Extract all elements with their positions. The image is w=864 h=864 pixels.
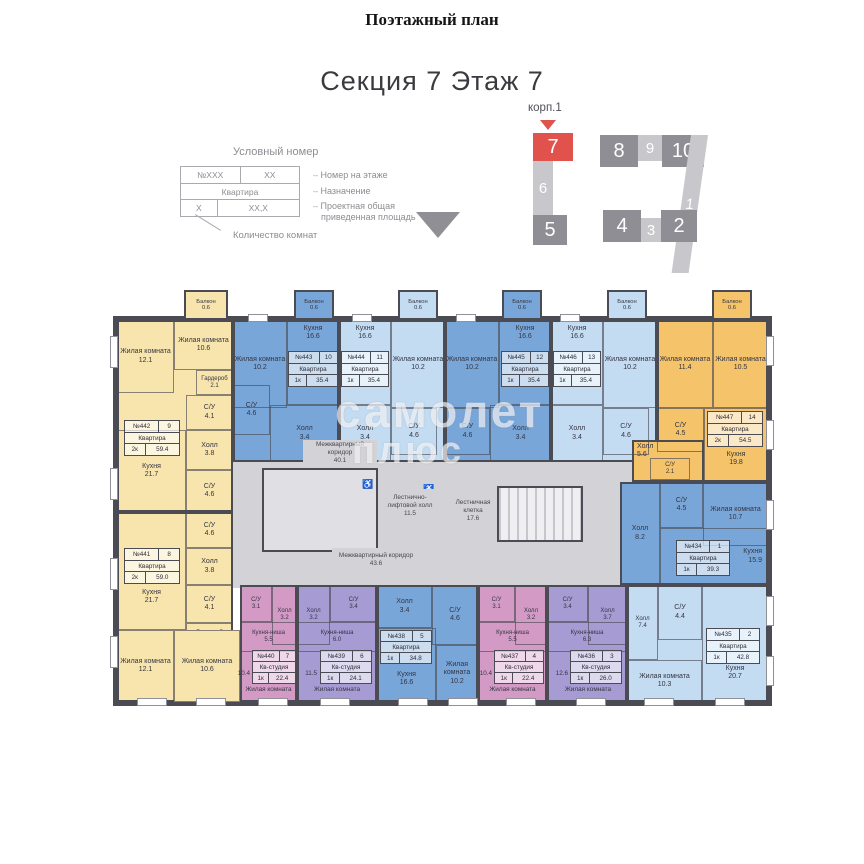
room-area: 7.4	[638, 623, 646, 630]
room-name: С/У	[620, 423, 631, 431]
room-name: Холл	[277, 608, 291, 615]
room-name: Жилая комната	[437, 661, 477, 677]
unit-rooms: 1к	[677, 564, 697, 575]
room-bathroom: С/У2.1	[650, 458, 690, 480]
legend-cell-pos: XX	[241, 167, 300, 183]
unit-pos: 12	[531, 352, 548, 363]
unit-number: №437	[495, 651, 526, 661]
unit-info-444: №44411Квартира1к35.4	[341, 351, 389, 387]
room-area: 15.9	[748, 557, 762, 565]
room-name: Кухня	[304, 325, 323, 333]
room-name: Жилая комната	[710, 506, 761, 514]
unit-pos: 9	[159, 421, 179, 432]
unit-type: Кв-студия	[321, 662, 371, 672]
building-section-diagram: корп.1 7 6 5 8 9 10 1 4 3 2	[528, 102, 743, 252]
unit-type: Квартира	[125, 561, 179, 572]
room-area: 3.1	[252, 604, 260, 611]
unit-type: Кв-студия	[495, 662, 543, 672]
unit-number: №441	[125, 549, 159, 560]
room-living: Жилая комната11.4	[657, 320, 713, 408]
window-marker	[560, 314, 580, 322]
room-bathroom: С/У4.6	[186, 470, 233, 512]
section-8[interactable]: 8	[600, 135, 638, 167]
room-name: Жилая комната	[639, 673, 690, 681]
room-wardrobe: Гардероб2.1	[196, 370, 233, 395]
room-name: Жилая комната	[715, 356, 766, 364]
unit-info-440: №4407Кв-студия1к22.4	[252, 650, 296, 684]
room-name: Кухня	[142, 589, 161, 597]
unit-rooms: 1к	[707, 652, 727, 663]
room-name: Холл	[569, 425, 586, 433]
unit-number: №440	[253, 651, 280, 661]
section-5[interactable]: 5	[533, 215, 567, 245]
room-area: 3.8	[205, 567, 215, 575]
unit-rooms: 1к	[495, 673, 513, 683]
legend-note-area-line2: приведенная площадь	[321, 212, 416, 222]
room-name: Кухня-ниша	[496, 630, 529, 637]
room-name: Холл	[201, 442, 218, 450]
room-area: 3.4	[400, 607, 410, 615]
section-pointer-icon	[540, 120, 556, 130]
unit-info-446: №44613Квартира1к35.4	[553, 351, 601, 387]
corridor-label: Межквартирный коридор43.6	[332, 548, 420, 572]
balcony-444: Балкон0.6	[398, 290, 438, 320]
window-marker	[196, 698, 226, 706]
room-name: Жилая комната	[660, 356, 711, 364]
balcony-447: Балкон0.6	[712, 290, 752, 320]
room-area: 3.2	[527, 615, 535, 622]
window-marker	[715, 698, 745, 706]
legend-note-purpose: Назначение	[313, 186, 371, 196]
window-marker	[110, 636, 118, 668]
room-area: 0.6	[310, 305, 318, 311]
legend-cell-number: №XXX	[181, 167, 241, 183]
room-area: 2.1	[666, 469, 674, 476]
unit-info-434: №4341Квартира1к39.3	[676, 540, 730, 576]
room-hall: Холл3.4	[377, 585, 432, 628]
unit-type: Квартира	[708, 424, 762, 435]
section-3[interactable]: 3	[641, 218, 661, 242]
room-area: 21.7	[145, 471, 159, 479]
room-area: 10.2	[253, 364, 267, 372]
window-marker	[258, 698, 288, 706]
room-hall: Холл3.8	[186, 430, 233, 470]
room-area: 4.1	[205, 604, 215, 612]
section-4[interactable]: 4	[603, 210, 641, 242]
unit-rooms: 1к	[321, 673, 340, 683]
window-marker	[137, 698, 167, 706]
room-living: Жилая комната12.1	[117, 630, 174, 702]
room-kitchen-niche: Кухня-ниша5.5	[240, 622, 297, 652]
room-name: Жилая комната	[235, 356, 286, 364]
room-name: С/У	[251, 597, 261, 604]
unit-pos: 8	[159, 549, 179, 560]
room-area: 16.6	[400, 679, 414, 687]
room-area: 10.6	[200, 666, 214, 674]
balcony-445: Балкон0.6	[502, 290, 542, 320]
room-bathroom: С/У4.1	[186, 585, 233, 623]
staircase	[497, 486, 583, 542]
room-area: 3.2	[309, 615, 317, 622]
section-9[interactable]: 9	[638, 135, 662, 161]
common-name: Лестнично-лифтовой холл	[384, 494, 436, 509]
unit-type: Квартира	[707, 641, 759, 652]
studio-living-area: 11.5	[300, 670, 317, 677]
section-number: 9	[646, 140, 654, 157]
unit-area: 22.4	[269, 673, 295, 683]
room-area: 10.5	[734, 364, 748, 372]
unit-type: Квартира	[677, 553, 729, 564]
room-name: Гардероб	[201, 376, 227, 383]
unit-info-437: №4374Кв-студия1к22.4	[494, 650, 544, 684]
unit-info-442: №4429Квартира2к59.4	[124, 420, 180, 456]
room-name: Холл	[306, 608, 320, 615]
room-bathroom: С/У4.4	[658, 585, 702, 640]
room-area: 4.5	[676, 430, 686, 438]
room-name: Холл	[632, 525, 649, 533]
room-living: Жилая комната10.6	[174, 630, 240, 702]
unit-rooms: 1к	[571, 673, 590, 683]
studio-living-caption: Жилая комната	[299, 686, 375, 693]
unit-number: №438	[381, 631, 413, 641]
room-name: С/У	[492, 597, 502, 604]
room-area: 2.1	[210, 383, 218, 390]
section-6[interactable]: 6	[533, 161, 553, 215]
window-marker	[506, 698, 536, 706]
common-area: 17.6	[467, 515, 479, 523]
legend-cell-rooms: X	[181, 200, 218, 216]
room-name: Холл	[600, 608, 614, 615]
room-area: 3.2	[280, 615, 288, 622]
room-area: 0.6	[623, 305, 631, 311]
room-area: 0.6	[518, 305, 526, 311]
studio-living-caption: Жилая комната	[478, 686, 547, 693]
common-name: Межквартирный коридор	[339, 552, 413, 560]
room-name: Жилая комната	[120, 348, 171, 356]
legend-cell-area: XX,X	[218, 200, 299, 216]
room-name: Кухня-ниша	[252, 630, 285, 637]
unit-area: 22.4	[513, 673, 543, 683]
window-marker	[456, 314, 476, 322]
room-name: Кухня	[727, 451, 746, 459]
room-name: Жилая комната	[120, 658, 171, 666]
window-marker	[110, 468, 118, 500]
room-kitchen-niche: Кухня-ниша6.0	[297, 622, 377, 652]
room-hall: Холл7.4	[627, 585, 658, 660]
section-number: 7	[547, 136, 558, 159]
unit-number: №443	[289, 352, 320, 363]
unit-info-435: №4352Квартира1к42.8	[706, 628, 760, 664]
room-name: С/У	[246, 402, 257, 410]
section-2[interactable]: 2	[661, 210, 697, 242]
room-area: 10.2	[465, 364, 479, 372]
room-area: 3.4	[349, 604, 357, 611]
room-bathroom: С/У4.6	[186, 512, 233, 548]
unit-pos: 7	[280, 651, 295, 661]
room-area: 10.6	[197, 345, 211, 353]
room-kitchen-niche: Кухня-ниша6.3	[547, 622, 627, 652]
room-area: 3.1	[492, 604, 500, 611]
unit-area: 35.4	[572, 375, 600, 386]
unit-rooms: 1к	[554, 375, 572, 386]
room-living: Жилая комната12.1	[117, 320, 174, 393]
room-hall: Холл3.4	[551, 405, 603, 462]
unit-pos: 10	[320, 352, 337, 363]
room-area: 16.6	[306, 333, 320, 341]
unit-number: №445	[502, 352, 531, 363]
unit-number: №439	[321, 651, 353, 661]
window-marker	[766, 596, 774, 626]
unit-number: №442	[125, 421, 159, 432]
room-name: Кухня	[726, 665, 745, 673]
unit-area: 54.5	[729, 435, 762, 446]
unit-pos: 6	[353, 651, 371, 661]
section-number: 4	[616, 215, 627, 238]
room-bathroom: С/У4.1	[186, 395, 233, 430]
studio-living-caption: Жилая комната	[240, 686, 297, 693]
building-label: корп.1	[528, 102, 562, 114]
unit-info-443: №44310Квартира1к35.4	[288, 351, 338, 387]
unit-number: №434	[677, 541, 710, 552]
room-area: 10.3	[658, 681, 672, 689]
unit-pos: 14	[742, 412, 762, 423]
room-area: 5.5	[508, 637, 516, 644]
section-number: 3	[647, 222, 655, 239]
room-name: Жилая комната	[178, 337, 229, 345]
room-area: 19.8	[729, 459, 743, 467]
room-kitchen-niche: Кухня-ниша5.5	[478, 622, 547, 652]
window-marker	[576, 698, 606, 706]
unit-area: 26.0	[590, 673, 621, 683]
window-marker	[766, 656, 774, 686]
page-title: Поэтажный план	[0, 10, 864, 30]
room-area: 4.6	[205, 491, 215, 499]
staircase-label: Лестничная клетка17.6	[450, 495, 496, 527]
window-marker	[644, 698, 674, 706]
room-area: 5.5	[264, 637, 272, 644]
section-number: 2	[673, 215, 684, 238]
unit-info-438: №4385Квартира1к34.8	[380, 630, 432, 664]
unit-type: Квартира	[125, 433, 179, 444]
room-living: Жилая комната10.2	[603, 320, 657, 408]
room-area: 3.4	[563, 604, 571, 611]
unit-number: №436	[571, 651, 603, 661]
room-name: Холл	[637, 443, 654, 451]
window-marker	[320, 698, 350, 706]
room-name: С/У	[204, 522, 215, 530]
unit-area: 59.4	[146, 444, 179, 455]
room-bathroom: С/У3.4	[547, 585, 588, 622]
unit-type: Квартира	[342, 364, 388, 375]
unit-type: Квартира	[554, 364, 600, 375]
unit-rooms: 2к	[708, 435, 729, 446]
window-marker	[398, 698, 428, 706]
room-bathroom: С/У4.6	[432, 585, 478, 645]
room-area: 4.4	[675, 613, 685, 621]
room-name: Жилая комната	[393, 356, 444, 364]
common-area: 43.6	[370, 560, 382, 568]
room-area: 4.5	[677, 505, 687, 513]
room-hall: Холл8.2	[620, 482, 660, 585]
unit-pos: 4	[526, 651, 543, 661]
section-number: 8	[613, 140, 624, 163]
room-hall: Холл3.8	[186, 548, 233, 585]
room-name: С/У	[349, 597, 359, 604]
studio-living-caption: Жилая комната	[549, 686, 627, 693]
room-area: 4.6	[205, 530, 215, 538]
room-area: 12.1	[139, 666, 153, 674]
room-area: 10.2	[450, 678, 464, 686]
unit-area: 24.1	[340, 673, 371, 683]
unit-type: Квартира	[502, 364, 548, 375]
room-area: 4.6	[450, 615, 460, 623]
unit-rooms: 1к	[253, 673, 269, 683]
room-living: Жилая комната10.6	[174, 320, 233, 370]
legend-note-rooms: Количество комнат	[233, 230, 317, 241]
room-name: Кухня-ниша	[321, 630, 354, 637]
room-area: 10.2	[411, 364, 425, 372]
room-name: Кухня	[743, 548, 762, 556]
room-name: Кухня	[142, 463, 161, 471]
room-bathroom: С/У3.1	[478, 585, 515, 622]
unit-area: 34.8	[400, 653, 431, 663]
room-area: 16.6	[358, 333, 372, 341]
unit-rooms: 1к	[289, 375, 307, 386]
unit-info-445: №44512Квартира1к35.4	[501, 351, 549, 387]
unit-rooms: 1к	[381, 653, 400, 663]
room-area: 0.6	[202, 305, 210, 311]
studio-living-area: 12.6	[551, 670, 568, 677]
room-living: Жилая комната10.5	[713, 320, 768, 408]
legend-note-number: Номер на этаже	[313, 170, 388, 180]
balcony-446: Балкон0.6	[607, 290, 647, 320]
room-name: Кухня	[397, 671, 416, 679]
balcony-442: Балкон0.6	[184, 290, 228, 320]
window-marker	[110, 558, 118, 590]
room-name: Кухня	[516, 325, 535, 333]
room-name: С/У	[665, 462, 675, 469]
window-marker	[248, 314, 268, 322]
common-name: Лестничная клетка	[450, 499, 496, 514]
legend-title: Условный номер	[233, 146, 318, 158]
unit-pos: 11	[371, 352, 388, 363]
unit-type: Квартира	[381, 642, 431, 652]
unit-number: №447	[708, 412, 742, 423]
unit-type: Кв-студия	[253, 662, 295, 672]
unit-info-439: №4396Кв-студия1к24.1	[320, 650, 372, 684]
room-name: С/У	[204, 483, 215, 491]
unit-area: 39.3	[697, 564, 729, 575]
room-name: Жилая комната	[447, 356, 498, 364]
unit-pos: 3	[603, 651, 621, 661]
unit-number: №435	[707, 629, 740, 640]
room-area: 0.6	[414, 305, 422, 311]
room-area: 3.4	[572, 434, 582, 442]
section-7[interactable]: 7	[533, 133, 573, 161]
room-area: 10.2	[623, 364, 637, 372]
room-name: Холл	[296, 425, 313, 433]
room-area: 0.6	[728, 305, 736, 311]
room-bathroom: С/У3.1	[240, 585, 272, 622]
room-name: Холл	[201, 558, 218, 566]
room-name: Кухня-ниша	[571, 630, 604, 637]
room-area: 11.4	[678, 364, 691, 372]
room-living: Жилая комната10.3	[627, 660, 702, 702]
section-floor-title: Секция 7 Этаж 7	[0, 66, 864, 97]
watermark-plus: плюс	[352, 430, 464, 473]
unit-pos: 5	[413, 631, 431, 641]
unit-info-447: №44714Квартира2к54.5	[707, 411, 763, 447]
room-name: Кухня	[568, 325, 587, 333]
unit-info-441: №4418Квартира2к59.0	[124, 548, 180, 584]
room-living: Жилая комната10.2	[436, 645, 478, 702]
unit-area: 59.0	[146, 572, 179, 583]
legend-sample-table: №XXXXX Квартира XXX,X	[180, 166, 300, 217]
room-name: С/У	[674, 604, 685, 612]
room-area: 20.7	[728, 673, 742, 681]
room-name: Жилая комната	[605, 356, 656, 364]
room-area: 6.3	[583, 637, 591, 644]
unit-area: 35.4	[307, 375, 337, 386]
room-area: 3.8	[205, 450, 215, 458]
room-name: С/У	[675, 422, 686, 430]
room-bathroom: С/У4.5	[660, 482, 703, 528]
unit-type: Кв-студия	[571, 662, 621, 672]
balcony-443: Балкон0.6	[294, 290, 334, 320]
section-number: 6	[539, 180, 547, 197]
room-area: 4.6	[247, 410, 257, 418]
window-marker	[766, 336, 774, 366]
studio-living-area: 10.4	[234, 670, 250, 677]
room-area: 4.6	[621, 432, 631, 440]
legend-cell-type: Квартира	[181, 184, 299, 200]
unit-pos: 2	[740, 629, 759, 640]
floor-plan-page: Поэтажный план Секция 7 Этаж 7 Условный …	[0, 0, 864, 864]
room-area: 12.1	[139, 357, 153, 365]
wheelchair-icon: ♿	[362, 479, 373, 490]
common-area: 11.5	[404, 510, 416, 518]
room-area: 6.0	[333, 637, 341, 644]
room-area: 3.7	[603, 615, 611, 622]
room-name: Холл	[396, 598, 413, 606]
unit-pos: 13	[583, 352, 600, 363]
room-bathroom: С/У3.4	[330, 585, 377, 622]
unit-pos: 1	[710, 541, 729, 552]
room-area: 4.1	[205, 413, 215, 421]
legend-note-area-line1: Проектная общая	[313, 201, 395, 211]
window-marker	[352, 314, 372, 322]
room-name: Холл	[635, 616, 649, 623]
unit-rooms: 2к	[125, 444, 146, 455]
legend: Условный номер №XXXXX Квартира XXX,X Ном…	[163, 146, 473, 252]
room-name: С/У	[204, 596, 215, 604]
room-bathroom: С/У4.6	[233, 385, 270, 435]
section-number: 5	[544, 219, 555, 242]
room-area: 16.6	[518, 333, 532, 341]
room-name: Жилая комната	[182, 658, 233, 666]
unit-number: №446	[554, 352, 583, 363]
unit-rooms: 2к	[125, 572, 146, 583]
room-name: Кухня	[356, 325, 375, 333]
unit-info-436: №4363Кв-студия1к26.0	[570, 650, 622, 684]
room-name: Холл	[524, 608, 538, 615]
room-name: С/У	[449, 607, 460, 615]
room-area: 21.7	[145, 597, 159, 605]
window-marker	[766, 500, 774, 530]
unit-area: 42.8	[727, 652, 759, 663]
room-area: 5.6	[637, 451, 647, 459]
room-area: 10.7	[729, 514, 743, 522]
